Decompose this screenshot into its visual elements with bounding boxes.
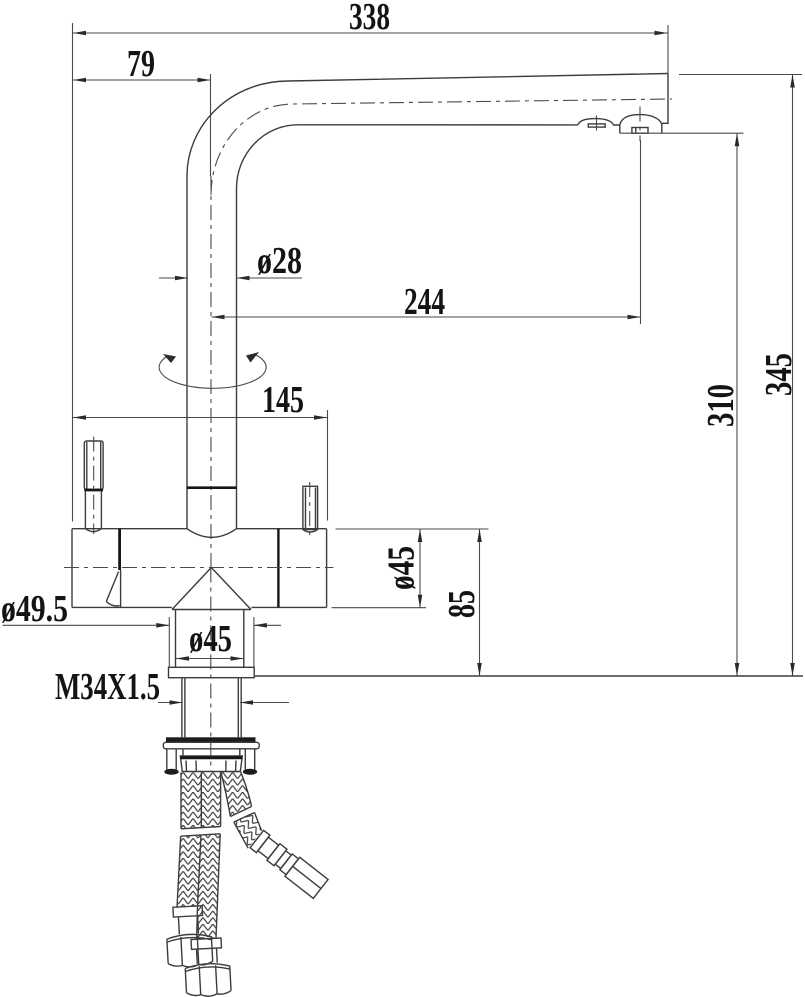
svg-text:79: 79 (127, 43, 155, 85)
svg-text:ø45: ø45 (381, 546, 423, 590)
svg-text:ø45: ø45 (189, 618, 232, 660)
svg-text:85: 85 (441, 590, 483, 618)
svg-text:ø49.5: ø49.5 (1, 588, 68, 630)
svg-text:345: 345 (758, 353, 800, 396)
svg-text:310: 310 (700, 384, 742, 427)
svg-text:338: 338 (349, 0, 390, 38)
svg-text:145: 145 (262, 379, 304, 421)
svg-text:ø28: ø28 (257, 240, 302, 282)
svg-text:M34X1.5: M34X1.5 (55, 666, 160, 708)
